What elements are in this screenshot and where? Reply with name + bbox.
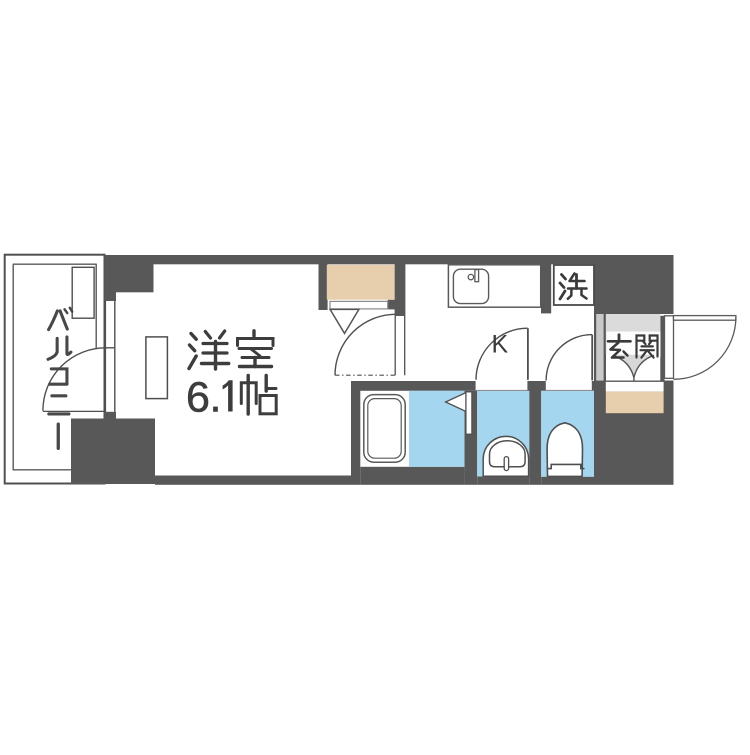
svg-text:.: . bbox=[210, 374, 222, 422]
svg-text:6: 6 bbox=[186, 374, 210, 422]
svg-text:K: K bbox=[492, 331, 509, 359]
